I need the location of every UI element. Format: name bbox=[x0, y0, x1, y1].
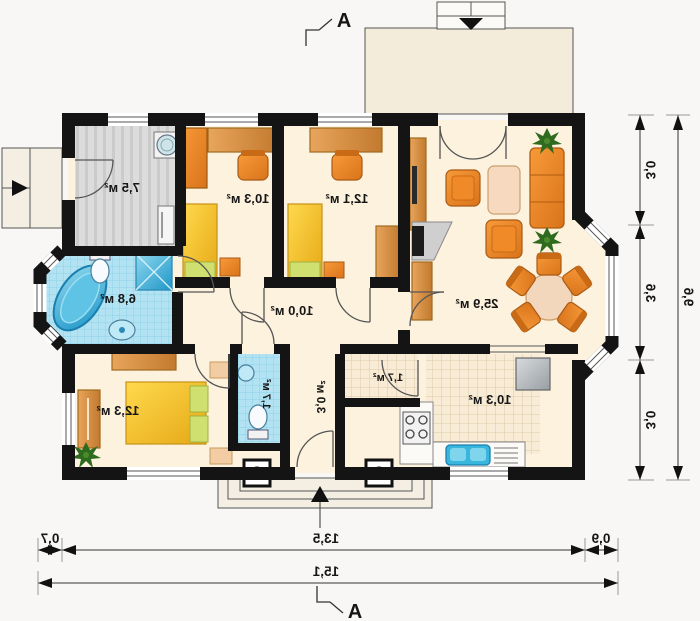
room-label-vestibule: 7,5 м² bbox=[104, 180, 140, 195]
dimension-bottom: 0,7 13,5 0,9 15,1 bbox=[38, 531, 618, 595]
boiler-icon bbox=[157, 135, 177, 155]
terrace bbox=[365, 28, 573, 114]
floor-plan-drawing: 7,5 м² 10,3 м² 12,1 м² 25,9 м² 6,8 м² 10… bbox=[0, 0, 700, 621]
dim-bottom-2: 0,9 bbox=[592, 531, 611, 546]
room-label-living: 25,9 м² bbox=[455, 296, 499, 311]
section-line-top bbox=[306, 19, 332, 46]
fridge-icon bbox=[516, 358, 550, 390]
pillow bbox=[190, 386, 208, 412]
dim-right-1: 3,6 bbox=[643, 283, 658, 302]
dim-right-total: 9,6 bbox=[681, 287, 696, 306]
desk bbox=[208, 128, 278, 152]
window bbox=[108, 113, 148, 126]
pillow bbox=[190, 416, 208, 442]
room-label-bedroom1: 10,3 м² bbox=[226, 191, 270, 206]
room-label-bedroom3: 12,3 м² bbox=[96, 403, 140, 418]
room-label-bathroom: 6,8 м² bbox=[100, 291, 136, 306]
section-label-bottom: A bbox=[348, 601, 362, 621]
tv-icon bbox=[412, 166, 417, 204]
window bbox=[127, 467, 200, 480]
room-label-corridor: 10,0 м² bbox=[270, 303, 314, 318]
room-label-hall: 3,0 м² bbox=[314, 381, 328, 414]
dimension-right: 3,0 3,6 3,0 9,6 bbox=[628, 115, 696, 480]
nightstand bbox=[220, 258, 240, 276]
room-label-pantry: 1,7 м² bbox=[373, 372, 403, 384]
dim-right-2: 3,0 bbox=[643, 411, 658, 430]
desk-chair bbox=[238, 154, 268, 180]
nightstand bbox=[324, 262, 344, 278]
dim-bottom-1: 13,5 bbox=[312, 531, 339, 546]
coffee-table bbox=[488, 166, 520, 214]
sofa bbox=[530, 148, 564, 228]
water-heater-icon bbox=[158, 206, 174, 244]
window bbox=[205, 113, 258, 126]
desk-chair bbox=[332, 154, 362, 180]
dim-bottom-total: 15,1 bbox=[312, 564, 339, 579]
room-label-wc: 1,7 м² bbox=[260, 379, 272, 409]
desk bbox=[310, 128, 382, 152]
floor-plan-page: 7,5 м² 10,3 м² 12,1 м² 25,9 м² 6,8 м² 10… bbox=[0, 0, 700, 621]
room-label-bedroom2: 12,1 м² bbox=[325, 191, 369, 206]
dim-right-0: 3,0 bbox=[643, 161, 658, 180]
entrance-porch bbox=[2, 148, 62, 228]
section-label-top: A bbox=[337, 10, 351, 32]
window bbox=[62, 393, 75, 445]
wardrobe bbox=[376, 226, 400, 282]
dim-bottom-0: 0,7 bbox=[41, 531, 60, 546]
room-label-kitchen: 10,3 м² bbox=[468, 392, 512, 407]
window bbox=[318, 113, 372, 126]
window bbox=[450, 467, 508, 480]
cabinet bbox=[412, 262, 432, 320]
section-line-bottom bbox=[317, 586, 343, 613]
washbasin-icon bbox=[238, 365, 254, 381]
